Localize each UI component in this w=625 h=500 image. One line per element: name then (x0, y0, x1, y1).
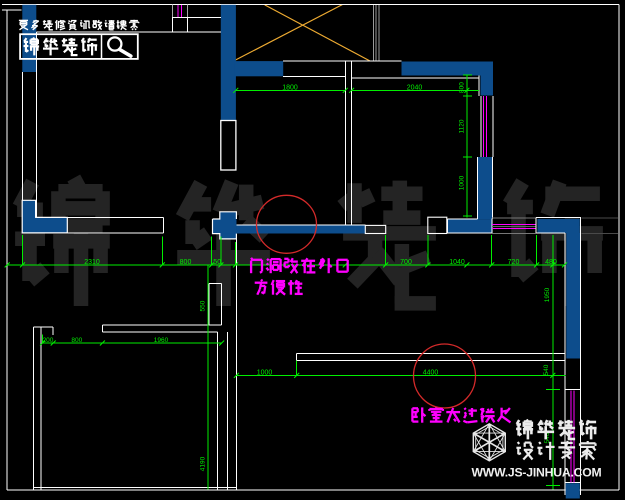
svg-text:540: 540 (543, 364, 550, 375)
svg-text:1960: 1960 (154, 337, 169, 344)
svg-text:800: 800 (71, 337, 82, 344)
svg-text:200: 200 (43, 337, 54, 344)
svg-text:550: 550 (200, 300, 207, 311)
svg-text:800: 800 (459, 82, 466, 93)
svg-text:720: 720 (508, 259, 520, 266)
svg-text:4400: 4400 (423, 370, 439, 377)
svg-text:800: 800 (180, 259, 192, 266)
svg-text:1040: 1040 (449, 259, 465, 266)
svg-text:1000: 1000 (459, 175, 466, 190)
svg-text:480: 480 (545, 259, 557, 266)
svg-text:1950: 1950 (544, 287, 551, 302)
svg-text:WWW.JS-JINHUA.COM: WWW.JS-JINHUA.COM (472, 466, 602, 480)
svg-text:2040: 2040 (407, 85, 423, 92)
svg-text:1120: 1120 (459, 119, 466, 133)
svg-text:50: 50 (213, 259, 221, 266)
svg-text:700: 700 (400, 259, 412, 266)
svg-text:2310: 2310 (84, 259, 100, 266)
svg-text:1000: 1000 (257, 370, 273, 377)
svg-text:1800: 1800 (282, 85, 298, 92)
svg-text:4190: 4190 (200, 456, 207, 471)
